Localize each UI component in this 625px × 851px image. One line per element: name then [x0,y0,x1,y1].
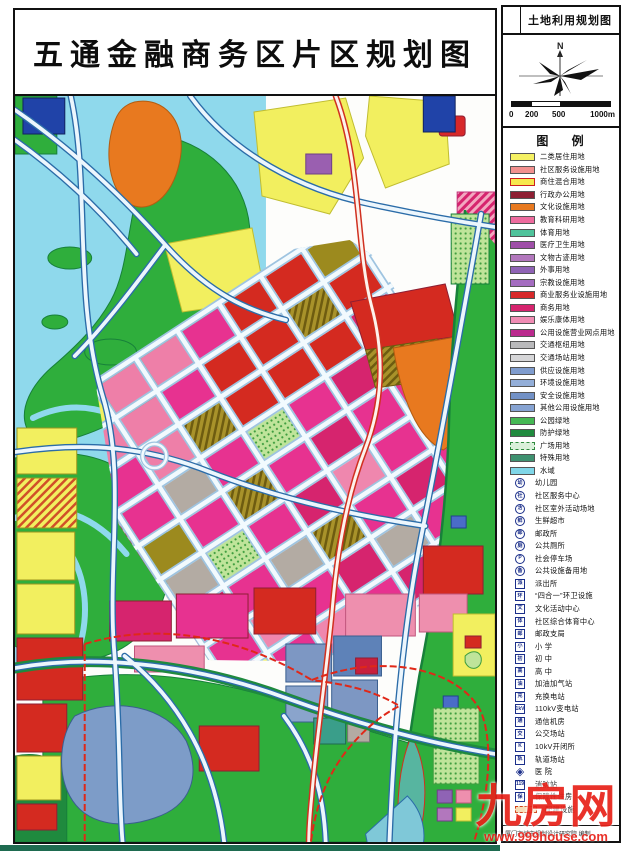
legend-title: 图 例 [503,128,619,151]
legend-label: 环境设施用地 [540,378,585,388]
scale-labels: 02005001000m [507,110,615,122]
110kV变电站-icon: 1kV [515,704,525,714]
scale-label: 200 [525,110,538,119]
10kV开闭所-icon: K [515,742,525,752]
legend-swatch [510,367,535,375]
legend-label: 110kV变电站 [535,704,579,714]
legend-row: 文物古迹用地 [503,251,619,264]
加油加气站-icon: 油 [515,679,525,689]
医院-icon: ◈ [515,767,525,777]
legend-swatch [510,166,535,174]
legend-label: 公共厕所 [535,541,565,551]
legend-row: 邮邮政所 [503,527,619,540]
legend-row: 保保障性住房 [503,791,619,804]
page-title: 五通金融商务区片区规划图 [33,30,477,74]
legend-label: 社区综合体育中心 [535,617,595,627]
legend-label: 商住混合用地 [540,177,585,187]
初中-icon: 初 [515,654,525,664]
高中-icon: 高 [515,667,525,677]
legend-row: 交公交场站 [503,728,619,741]
legend-row: 环“四合一”环卫设施 [503,590,619,603]
legend-panel: 图 例 二类居住用地社区服务设施用地商住混合用地行政办公用地文化设施用地教育科研… [501,128,621,843]
scale-label: 500 [552,110,565,119]
legend-row: ◈医 院 [503,766,619,779]
title-band: 五通金融商务区片区规划图 [15,10,495,96]
legend-label: 高 中 [535,667,552,677]
幼儿园-icon: 幼 [515,478,525,488]
legend-row: 通通信机房 [503,716,619,729]
legend-row: 备公共设施备用地 [503,565,619,578]
legend-row: 119消防站 [503,778,619,791]
legend-row: 公用设施营业网点用地 [503,327,619,340]
legend-swatch [510,404,535,412]
legend-label: 广场用地 [540,441,570,451]
legend-label: “四合一”环卫设施 [535,591,593,601]
legend-swatch [510,304,535,312]
legend-label: 加油加气站 [535,679,572,689]
legend-label: 文物古迹用地 [540,253,585,263]
legend-label: 社会停车场 [535,554,572,564]
legend-label: 交通场站用地 [540,353,585,363]
legend-row: 配建设施 [503,803,619,816]
legend-swatch [510,266,535,274]
legend-note: 厦门市城市规划设计研究院 编制 [503,825,619,841]
legend-label: 商务用地 [540,303,570,313]
充换电站-icon: 充 [515,692,525,702]
legend-label: 宗教设施用地 [540,278,585,288]
legend-label: 小 学 [535,642,552,652]
plan-sheet-page: 五通金融商务区片区规划图 [0,0,625,851]
legend-row: 二类居住用地 [503,151,619,164]
legend-label: 医疗卫生用地 [540,240,585,250]
legend-row: 医疗卫生用地 [503,239,619,252]
legend-row: 文文化活动中心 [503,603,619,616]
legend-label: 特殊用地 [540,453,570,463]
legend-row: 教育科研用地 [503,214,619,227]
社区综合体育中心-icon: 体 [515,617,525,627]
legend-row: 1kV110kV变电站 [503,703,619,716]
north-label: N [557,41,564,51]
legend-label: 通信机房 [535,717,565,727]
邮政支局-icon: 邮 [515,629,525,639]
legend-swatch [510,254,535,262]
legend-label: 商业服务业设施用地 [540,290,607,300]
scale-label: 1000m [590,110,615,119]
legend-label: 10kV开闭所 [535,742,575,752]
panel-header-label: 土地利用规划图 [521,7,619,33]
scale-label: 0 [509,110,513,119]
legend-row: 商务用地 [503,302,619,315]
legend-label: 行政办公用地 [540,190,585,200]
legend-row: K10kV开闭所 [503,741,619,754]
小学-icon: 小 [515,642,525,652]
legend-label: 交通枢纽用地 [540,340,585,350]
legend-label: 生鲜超市 [535,516,565,526]
legend-label: 公用设施营业网点用地 [540,328,615,338]
legend-label: 体育用地 [540,228,570,238]
轨道场站-icon: 轨 [515,755,525,765]
legend-row: 幼幼儿园 [503,477,619,490]
邮政所-icon: 邮 [515,529,525,539]
legend-label: 其他公用设施用地 [540,403,600,413]
bottom-edge-strip [0,845,500,851]
compass-points [533,60,599,96]
legend-row: 文化设施用地 [503,201,619,214]
legend-label: 水域 [540,466,555,476]
legend-swatch [510,429,535,437]
legend-label: 外事用地 [540,265,570,275]
legend-label: 安全设施用地 [540,391,585,401]
配建设施-icon [515,806,537,813]
legend-swatch [510,241,535,249]
公交场站-icon: 交 [515,729,525,739]
legend-row: 安全设施用地 [503,389,619,402]
legend-row: 供应设施用地 [503,364,619,377]
panel-header-cell [503,7,521,33]
legend-rows: 二类居住用地社区服务设施用地商住混合用地行政办公用地文化设施用地教育科研用地体育… [503,151,619,816]
legend-row: 防护绿地 [503,427,619,440]
legend-row: 初初 中 [503,653,619,666]
四合一环卫设施-icon: 环 [515,591,525,601]
legend-label: 社区服务中心 [535,491,580,501]
panel-header: 土地利用规划图 [501,5,621,35]
legend-label: 娱乐康体用地 [540,315,585,325]
legend-swatch [510,229,535,237]
legend-swatch [510,279,535,287]
legend-row: 派派出所 [503,578,619,591]
legend-row: 商业服务业设施用地 [503,289,619,302]
legend-label: 公交场站 [535,729,565,739]
legend-row: 交通场站用地 [503,352,619,365]
legend-swatch [510,291,535,299]
legend-row: P社会停车场 [503,553,619,566]
legend-swatch [510,467,535,475]
legend-swatch [510,442,535,450]
派出所-icon: 派 [515,579,525,589]
legend-swatch [510,316,535,324]
scale-bar [511,101,611,107]
legend-row: 鲜生鲜超市 [503,515,619,528]
生鲜超市-icon: 鲜 [515,516,525,526]
legend-swatch [510,454,535,462]
legend-label: 初 中 [535,654,552,664]
legend-swatch [510,153,535,161]
legend-swatch [510,392,535,400]
社区服务中心-icon: 社 [515,491,525,501]
legend-swatch [510,178,535,186]
legend-row: 小小 学 [503,640,619,653]
legend-label: 消防站 [535,780,557,790]
legend-row: 环境设施用地 [503,377,619,390]
legend-swatch [510,354,535,362]
legend-label: 二类居住用地 [540,152,585,162]
legend-row: 外事用地 [503,264,619,277]
legend-label: 社区室外活动场地 [535,504,595,514]
legend-row: 特殊用地 [503,452,619,465]
legend-label: 社区服务设施用地 [540,165,600,175]
legend-row: 社区服务设施用地 [503,164,619,177]
社会停车场-icon: P [515,554,525,564]
side-panel: 土地利用规划图 N [501,5,621,843]
legend-label: 保障性住房 [535,792,572,802]
legend-row: 商住混合用地 [503,176,619,189]
legend-row: 广场用地 [503,440,619,453]
legend-row: 厕公共厕所 [503,540,619,553]
legend-row: 体社区综合体育中心 [503,615,619,628]
legend-swatch [510,203,535,211]
legend-swatch [510,417,535,425]
legend-swatch [510,341,535,349]
legend-label: 供应设施用地 [540,366,585,376]
legend-row: 公园绿地 [503,414,619,427]
legend-row: 水域 [503,465,619,478]
公共设施备用地-icon: 备 [515,566,525,576]
消防站-icon: 119 [515,780,525,790]
legend-row: 宗教设施用地 [503,276,619,289]
legend-label: 轨道场站 [535,755,565,765]
legend-row: 邮邮政支局 [503,628,619,641]
legend-label: 医 院 [535,767,552,777]
legend-row: 轨轨道场站 [503,753,619,766]
landuse-map-graphic [15,96,495,842]
legend-row: 高高 中 [503,665,619,678]
legend-label: 文化活动中心 [535,604,580,614]
legend-row: 交通枢纽用地 [503,339,619,352]
legend-label: 派出所 [535,579,557,589]
文化活动中心-icon: 文 [515,604,525,614]
legend-row: 活社区室外活动场地 [503,502,619,515]
通信机房-icon: 通 [515,717,525,727]
legend-row: 其他公用设施用地 [503,402,619,415]
legend-label: 充换电站 [535,692,565,702]
map-sheet-frame: 五通金融商务区片区规划图 [13,8,497,844]
公共厕所-icon: 厕 [515,541,525,551]
legend-row: 娱乐康体用地 [503,314,619,327]
保障性住房-icon: 保 [515,792,525,802]
legend-swatch [510,216,535,224]
legend-row: 行政办公用地 [503,189,619,202]
legend-row: 油加油加气站 [503,678,619,691]
legend-swatch [510,191,535,199]
legend-label: 邮政所 [535,529,557,539]
legend-row: 充充换电站 [503,691,619,704]
legend-label: 幼儿园 [535,478,557,488]
compass-rose: N [505,35,617,107]
legend-label: 邮政支局 [535,629,565,639]
社区室外活动场地-icon: 活 [515,504,525,514]
legend-swatch [510,329,535,337]
legend-label: 教育科研用地 [540,215,585,225]
legend-label: 防护绿地 [540,428,570,438]
compass-box: N 02005001000m [501,35,621,128]
legend-label: 配建设施 [545,805,575,815]
legend-label: 公园绿地 [540,416,570,426]
legend-row: 社社区服务中心 [503,490,619,503]
legend-label: 公共设施备用地 [535,566,587,576]
legend-row: 体育用地 [503,226,619,239]
legend-label: 文化设施用地 [540,202,585,212]
legend-swatch [510,379,535,387]
